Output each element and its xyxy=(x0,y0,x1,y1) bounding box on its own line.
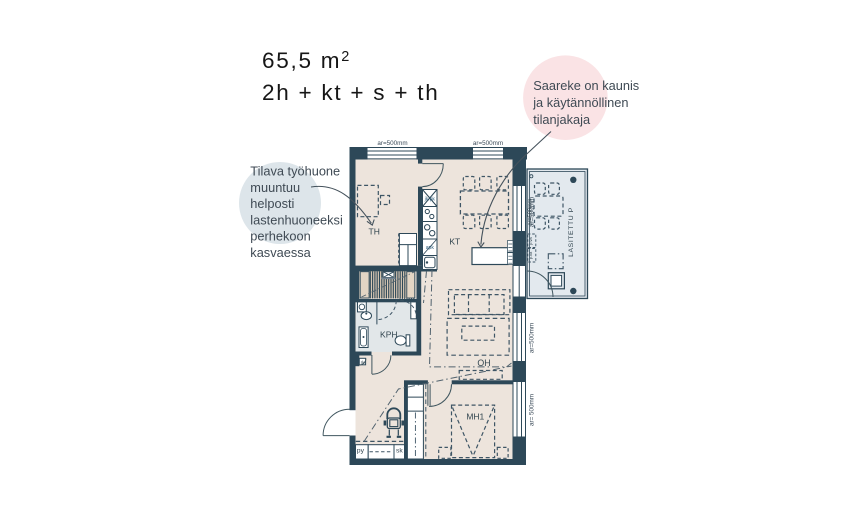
svg-text:Saareke on kaunis: Saareke on kaunis xyxy=(533,78,639,93)
svg-text:sk: sk xyxy=(396,448,403,455)
svg-text:kasvaessa: kasvaessa xyxy=(250,245,311,260)
svg-text:ar= 500mm: ar= 500mm xyxy=(529,394,536,426)
svg-text:TH: TH xyxy=(369,226,380,236)
svg-text:apk: apk xyxy=(426,245,435,251)
svg-text:KT: KT xyxy=(449,237,460,247)
svg-text:MH1: MH1 xyxy=(466,412,484,422)
svg-text:LASITETTU P: LASITETTU P xyxy=(568,207,575,257)
svg-text:2h + kt + s + th: 2h + kt + s + th xyxy=(262,80,439,105)
svg-text:tilanjakaja: tilanjakaja xyxy=(533,112,591,127)
svg-text:helposti: helposti xyxy=(250,196,294,211)
svg-text:ja käytännöllinen: ja käytännöllinen xyxy=(532,95,628,110)
svg-text:KPH: KPH xyxy=(380,330,397,340)
svg-text:jk/pk: jk/pk xyxy=(424,197,436,203)
svg-text:lastenhuoneeksi: lastenhuoneeksi xyxy=(250,212,342,227)
svg-text:p.vä: p.vä xyxy=(528,236,533,244)
svg-text:Tilava työhuone: Tilava työhuone xyxy=(250,164,340,179)
svg-text:p.vä: p.vä xyxy=(528,251,533,259)
svg-text:ar=500mm: ar=500mm xyxy=(473,140,503,147)
svg-text:ar=500mm: ar=500mm xyxy=(528,198,534,225)
svg-text:ar=500mm: ar=500mm xyxy=(377,140,407,147)
svg-text:py: py xyxy=(357,448,365,455)
svg-text:muuntuu: muuntuu xyxy=(250,180,300,195)
svg-text:ar=500mm: ar=500mm xyxy=(529,323,536,353)
svg-text:65,5 m2: 65,5 m2 xyxy=(262,48,351,73)
svg-text:perhekoon: perhekoon xyxy=(250,229,310,244)
